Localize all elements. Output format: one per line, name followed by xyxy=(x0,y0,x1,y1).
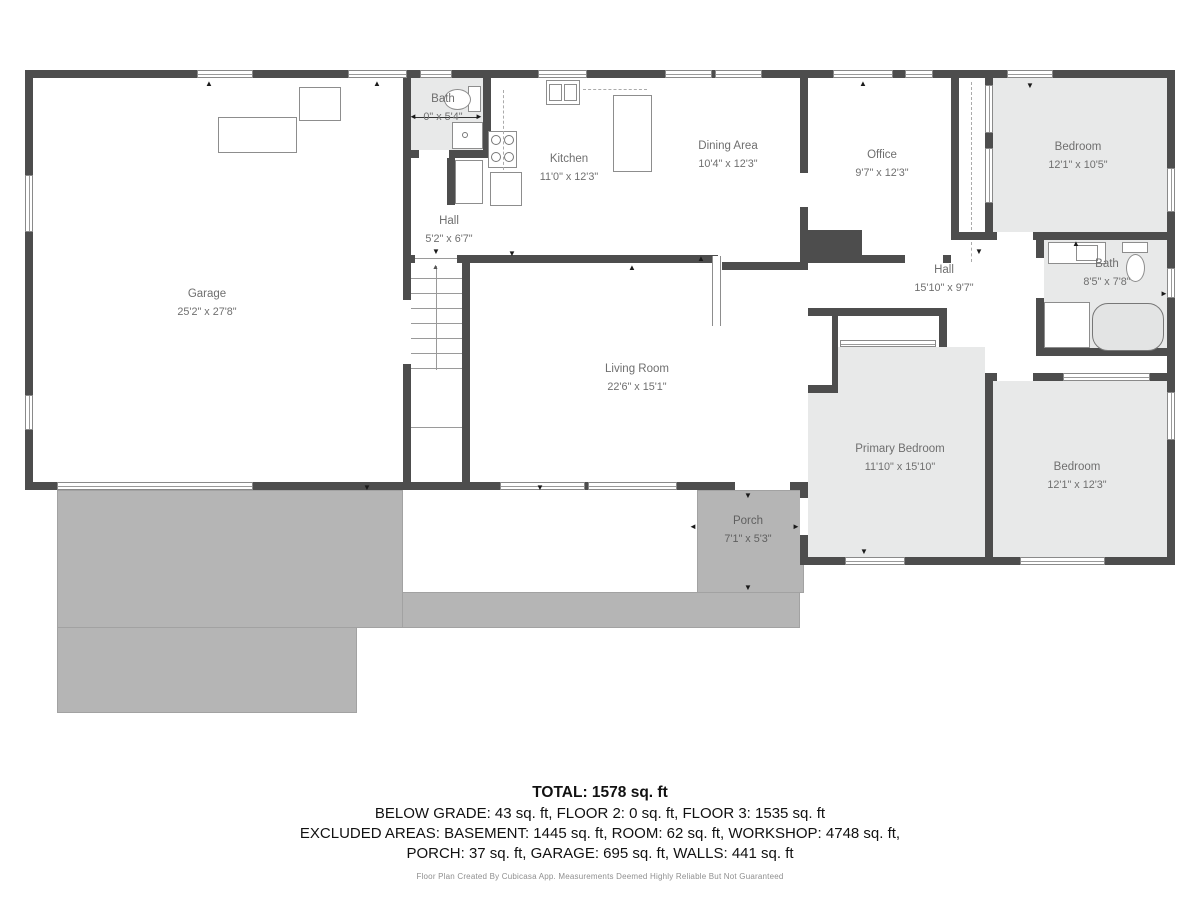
walkway-area xyxy=(402,592,800,628)
window xyxy=(905,70,933,78)
excluded-areas-text: EXCLUDED AREAS: BASEMENT: 1445 sq. ft, R… xyxy=(0,825,1200,842)
dimension-arrow: ► xyxy=(792,523,800,531)
wall-bedrooms-divider xyxy=(985,373,993,557)
room-label-living: Living Room 22'6" x 15'1" xyxy=(605,360,669,397)
area-summary: TOTAL: 1578 sq. ft BELOW GRADE: 43 sq. f… xyxy=(0,784,1200,865)
room-name: Kitchen xyxy=(550,153,588,165)
room-name: Garage xyxy=(188,288,226,300)
driveway-area-lower xyxy=(57,627,357,713)
room-label-primary-bedroom: Primary Bedroom 11'10" x 15'10" xyxy=(855,440,944,477)
room-name: Bath xyxy=(1095,258,1119,270)
wall-primary-closet-east xyxy=(939,308,947,347)
room-label-bath-small: Bath 0" x 5'4" xyxy=(423,90,462,127)
refrigerator xyxy=(490,172,522,206)
room-name: Bedroom xyxy=(1054,461,1101,473)
sink-drain-icon xyxy=(462,132,468,138)
room-dims: 12'1" x 10'5" xyxy=(1048,159,1107,171)
garage-door xyxy=(57,482,253,490)
bathtub xyxy=(1092,303,1164,351)
wall-bedroom-tr-south xyxy=(951,232,1167,240)
closet-dashed-line xyxy=(971,82,972,230)
dimension-arrow: ▲ xyxy=(1072,240,1080,248)
stair-center-line xyxy=(436,266,437,370)
dimension-arrow: ◄ xyxy=(689,523,697,531)
dimension-arrow: ▼ xyxy=(860,548,868,556)
window xyxy=(1167,392,1175,440)
room-label-office: Office 9'7" x 12'3" xyxy=(855,146,908,183)
room-label-garage: Garage 25'2" x 27'8" xyxy=(177,285,236,322)
room-dims: 15'10" x 9'7" xyxy=(914,282,973,294)
dimension-arrow: ▲ xyxy=(859,80,867,88)
door-opening-stairs-top xyxy=(415,255,457,263)
closet-sliding-door-primary xyxy=(840,340,936,347)
window xyxy=(1007,70,1053,78)
garage-storage-unit xyxy=(299,87,341,121)
window xyxy=(25,175,33,232)
room-name: Hall xyxy=(439,215,459,227)
room-name: Primary Bedroom xyxy=(855,443,944,455)
dimension-arrow: ▲ xyxy=(628,264,636,272)
stair-door-line xyxy=(415,258,457,259)
window xyxy=(1020,557,1105,565)
door-opening-office xyxy=(800,173,808,207)
closet-band-bedroom-br xyxy=(1040,356,1162,373)
stair-landing-line xyxy=(411,427,462,428)
room-dims: 25'2" x 27'8" xyxy=(177,306,236,318)
bath-linen-closet xyxy=(1044,302,1090,348)
closet-dashed-line xyxy=(971,242,972,262)
wall-living-north-b xyxy=(722,262,808,270)
dimension-arrow: ▼ xyxy=(1026,82,1034,90)
room-dims: 22'6" x 15'1" xyxy=(607,381,666,393)
dimension-arrow: ▲ xyxy=(373,80,381,88)
room-name: Hall xyxy=(934,264,954,276)
room-label-bedroom-tr: Bedroom 12'1" x 10'5" xyxy=(1048,138,1107,175)
window xyxy=(197,70,253,78)
wall-exterior-right xyxy=(1167,70,1175,565)
window xyxy=(1167,268,1175,298)
room-name: Porch xyxy=(733,515,763,527)
closet-door-bedroom-tr-1 xyxy=(985,85,993,133)
door-opening-porch-entry xyxy=(800,498,808,535)
room-dims: 12'1" x 12'3" xyxy=(1047,479,1106,491)
room-dims: 7'1" x 5'3" xyxy=(724,533,771,545)
room-dims: 9'7" x 12'3" xyxy=(855,167,908,179)
dimension-arrow: ▼ xyxy=(744,492,752,500)
dimension-arrow: ▼ xyxy=(536,484,544,492)
credit-text: Floor Plan Created By Cubicasa App. Meas… xyxy=(0,872,1200,881)
room-label-hall: Hall 15'10" x 9'7" xyxy=(914,261,973,298)
room-dims: 8'5" x 7'8" xyxy=(1083,276,1130,288)
chimney-block xyxy=(806,230,862,257)
kitchen-counter-peninsula xyxy=(613,95,652,172)
stove-burner xyxy=(504,135,514,145)
dimension-arrow: ▼ xyxy=(363,484,371,492)
door-opening-primary xyxy=(800,350,808,385)
wall-primary-closet-north xyxy=(808,308,947,316)
dimension-arrow: ▼ xyxy=(508,250,516,258)
dimension-arrow: ▲ xyxy=(205,80,213,88)
wall-office-east xyxy=(951,70,959,240)
dimension-arrow: ► xyxy=(475,113,483,121)
wall-primary-vestibule-south xyxy=(808,385,838,393)
wall-garage-east xyxy=(403,70,411,490)
door-opening-bath-small xyxy=(419,150,449,158)
toilet-tank xyxy=(1122,242,1148,253)
window xyxy=(715,70,762,78)
door-opening-living-porch xyxy=(735,482,790,490)
kitchen-sink-basin-right xyxy=(564,84,577,101)
room-name: Bath xyxy=(431,93,455,105)
room-name: Bedroom xyxy=(1055,141,1102,153)
room-name: Office xyxy=(867,149,897,161)
dimension-arrow: ▼ xyxy=(744,584,752,592)
window xyxy=(588,482,677,490)
upper-cabinet-dashed-line xyxy=(503,90,504,170)
garage-storage-unit xyxy=(218,117,297,153)
floor-plan: ▲ ◄ ► ▲ ▲ ▼ ▼ ▲ ▲ ▲ ▼ ▼ ▲ ▼ ▼ ◄ ► ▼ ▼ ▼ … xyxy=(0,0,1200,900)
wall-hall-small-east xyxy=(447,158,455,205)
window xyxy=(833,70,893,78)
stair-up-arrow-icon: ▲ xyxy=(432,264,439,271)
dimension-arrow: ◄ xyxy=(409,113,417,121)
floors-area-text: BELOW GRADE: 43 sq. ft, FLOOR 2: 0 sq. f… xyxy=(0,805,1200,822)
room-label-dining: Dining Area 10'4" x 12'3" xyxy=(698,137,757,174)
room-label-bath-right: Bath 8'5" x 7'8" xyxy=(1083,255,1130,292)
window xyxy=(1167,168,1175,212)
room-name: Dining Area xyxy=(698,140,757,152)
door-opening-bedroom-tr xyxy=(997,232,1033,240)
upper-cabinet-dashed-line xyxy=(583,89,647,90)
closet-sliding-door-bedroom-br xyxy=(1063,373,1150,381)
shower-closet xyxy=(455,160,483,204)
room-label-hall-small: Hall 5'2" x 6'7" xyxy=(425,212,472,249)
window xyxy=(538,70,587,78)
dimension-arrow: ► xyxy=(1160,290,1168,298)
wall-stair-east xyxy=(462,255,470,490)
door-opening-garage xyxy=(403,300,411,364)
stove-burner xyxy=(504,152,514,162)
room-label-porch: Porch 7'1" x 5'3" xyxy=(724,512,771,549)
room-fill-primary-bedroom-west xyxy=(808,393,842,557)
excluded-areas-text-2: PORCH: 37 sq. ft, GARAGE: 695 sq. ft, WA… xyxy=(0,845,1200,862)
dimension-arrow: ▼ xyxy=(432,248,440,256)
glass-partition xyxy=(712,256,721,326)
wall-bedroom-br-north-c xyxy=(1150,373,1167,381)
wall-primary-vestibule xyxy=(832,315,838,393)
room-dims: 11'0" x 12'3" xyxy=(540,171,598,183)
room-label-kitchen: Kitchen 11'0" x 12'3" xyxy=(540,150,598,187)
room-label-bedroom-br: Bedroom 12'1" x 12'3" xyxy=(1047,458,1106,495)
room-dims: 10'4" x 12'3" xyxy=(698,158,757,170)
dimension-arrow: ▲ xyxy=(697,255,705,263)
wall-bedroom-br-north-b xyxy=(1033,373,1063,381)
driveway-area xyxy=(57,490,403,628)
room-dims: 5'2" x 6'7" xyxy=(425,233,472,245)
window xyxy=(348,70,407,78)
room-dims: 11'10" x 15'10" xyxy=(865,461,935,473)
room-name: Living Room xyxy=(605,363,669,375)
wall-living-north-a xyxy=(411,255,718,263)
room-dims: 0" x 5'4" xyxy=(423,111,462,123)
closet-door-bedroom-tr-2 xyxy=(985,148,993,203)
window xyxy=(845,557,905,565)
window xyxy=(420,70,452,78)
window xyxy=(25,395,33,430)
kitchen-sink-basin-left xyxy=(549,84,562,101)
total-area-text: TOTAL: 1578 sq. ft xyxy=(0,784,1200,802)
window xyxy=(665,70,712,78)
stove-burner xyxy=(491,135,501,145)
dimension-arrow: ▼ xyxy=(975,248,983,256)
door-opening-bath-right xyxy=(1036,258,1044,298)
stove-burner xyxy=(491,152,501,162)
